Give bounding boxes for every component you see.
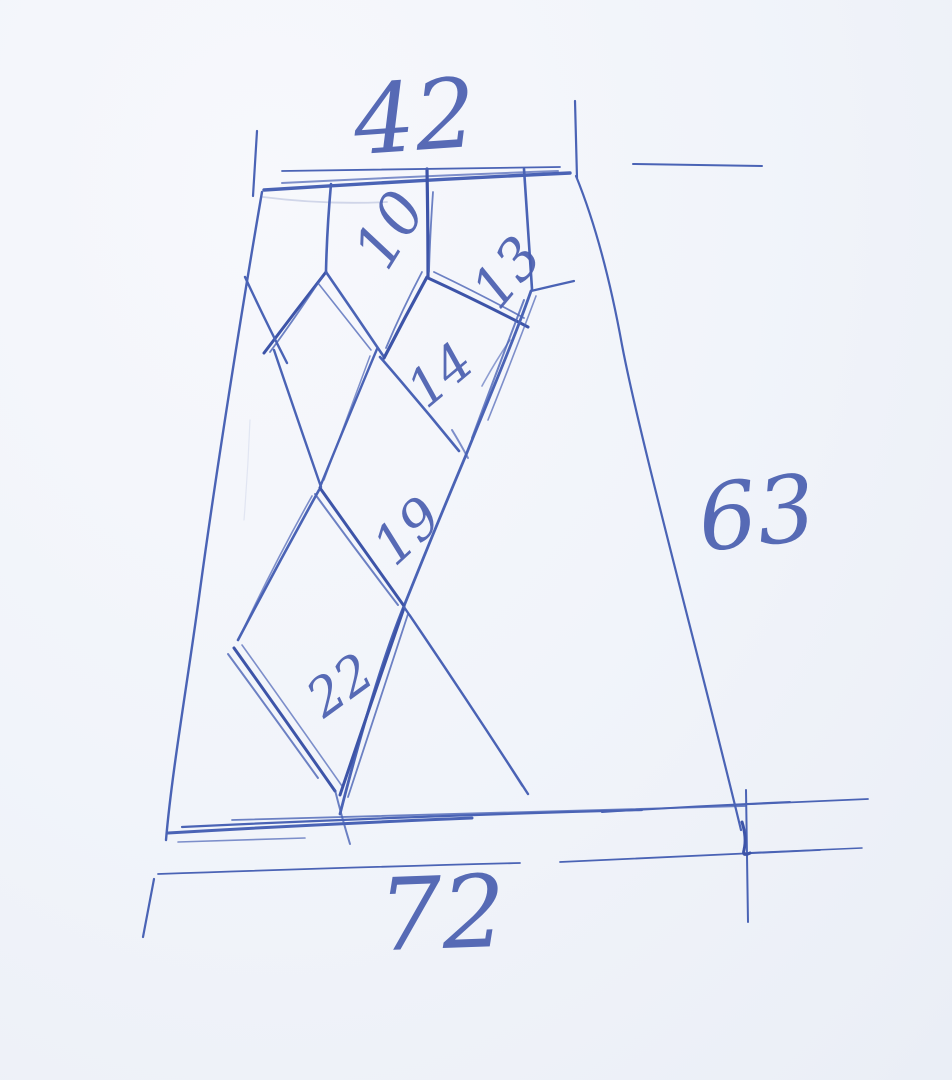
bottom-dim-right-tick [746,790,748,922]
top-dim-right-tick [575,101,577,178]
bottom-dim-left-tick [143,879,154,937]
sketch-canvas: 42 63 72 10 13 14 19 22 [0,0,952,1080]
cell-label-13: 13 [459,225,555,321]
scanned-paper-sketch: 42 63 72 10 13 14 19 22 [0,0,952,1080]
cell-label-14: 14 [396,332,485,420]
dimension-bottom-value: 72 [376,853,507,974]
dimension-right-value: 63 [693,454,821,573]
dimension-top-value: 42 [349,57,480,177]
handwritten-labels: 42 63 72 10 13 14 19 22 [295,57,820,974]
cell-label-22: 22 [295,642,385,730]
cell-label-10: 10 [340,179,440,281]
top-dim-left-tick [253,131,257,196]
